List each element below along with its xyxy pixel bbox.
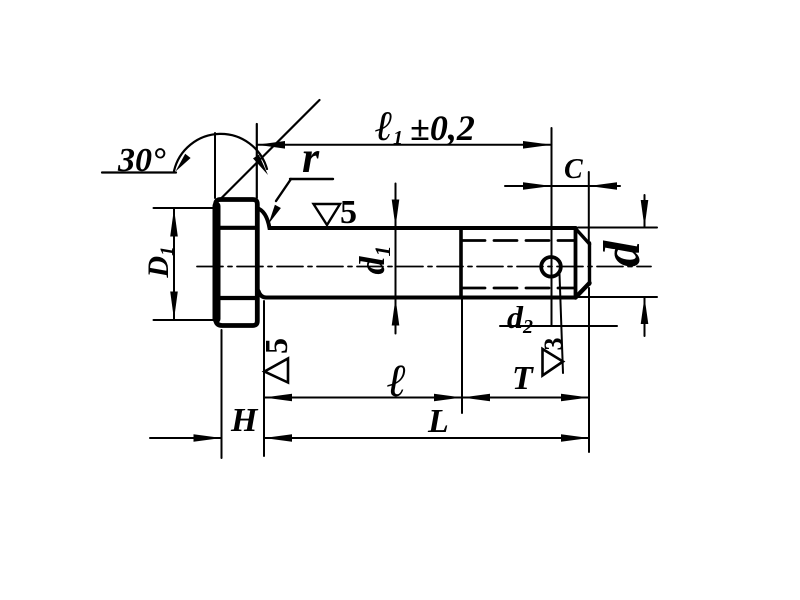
svg-text:5: 5 [340, 194, 357, 231]
svg-text:L: L [427, 403, 449, 440]
svg-text:r: r [302, 133, 320, 182]
svg-text:d: d [594, 240, 651, 267]
svg-text:30°: 30° [117, 142, 166, 179]
svg-text:H: H [230, 402, 259, 439]
svg-text:ℓ1 ±0,2: ℓ1 ±0,2 [375, 104, 475, 150]
svg-text:ℓ: ℓ [387, 355, 407, 406]
svg-text:T: T [512, 360, 534, 397]
svg-text:C: C [564, 154, 583, 185]
svg-text:3: 3 [539, 338, 568, 351]
svg-text:5: 5 [258, 338, 294, 354]
